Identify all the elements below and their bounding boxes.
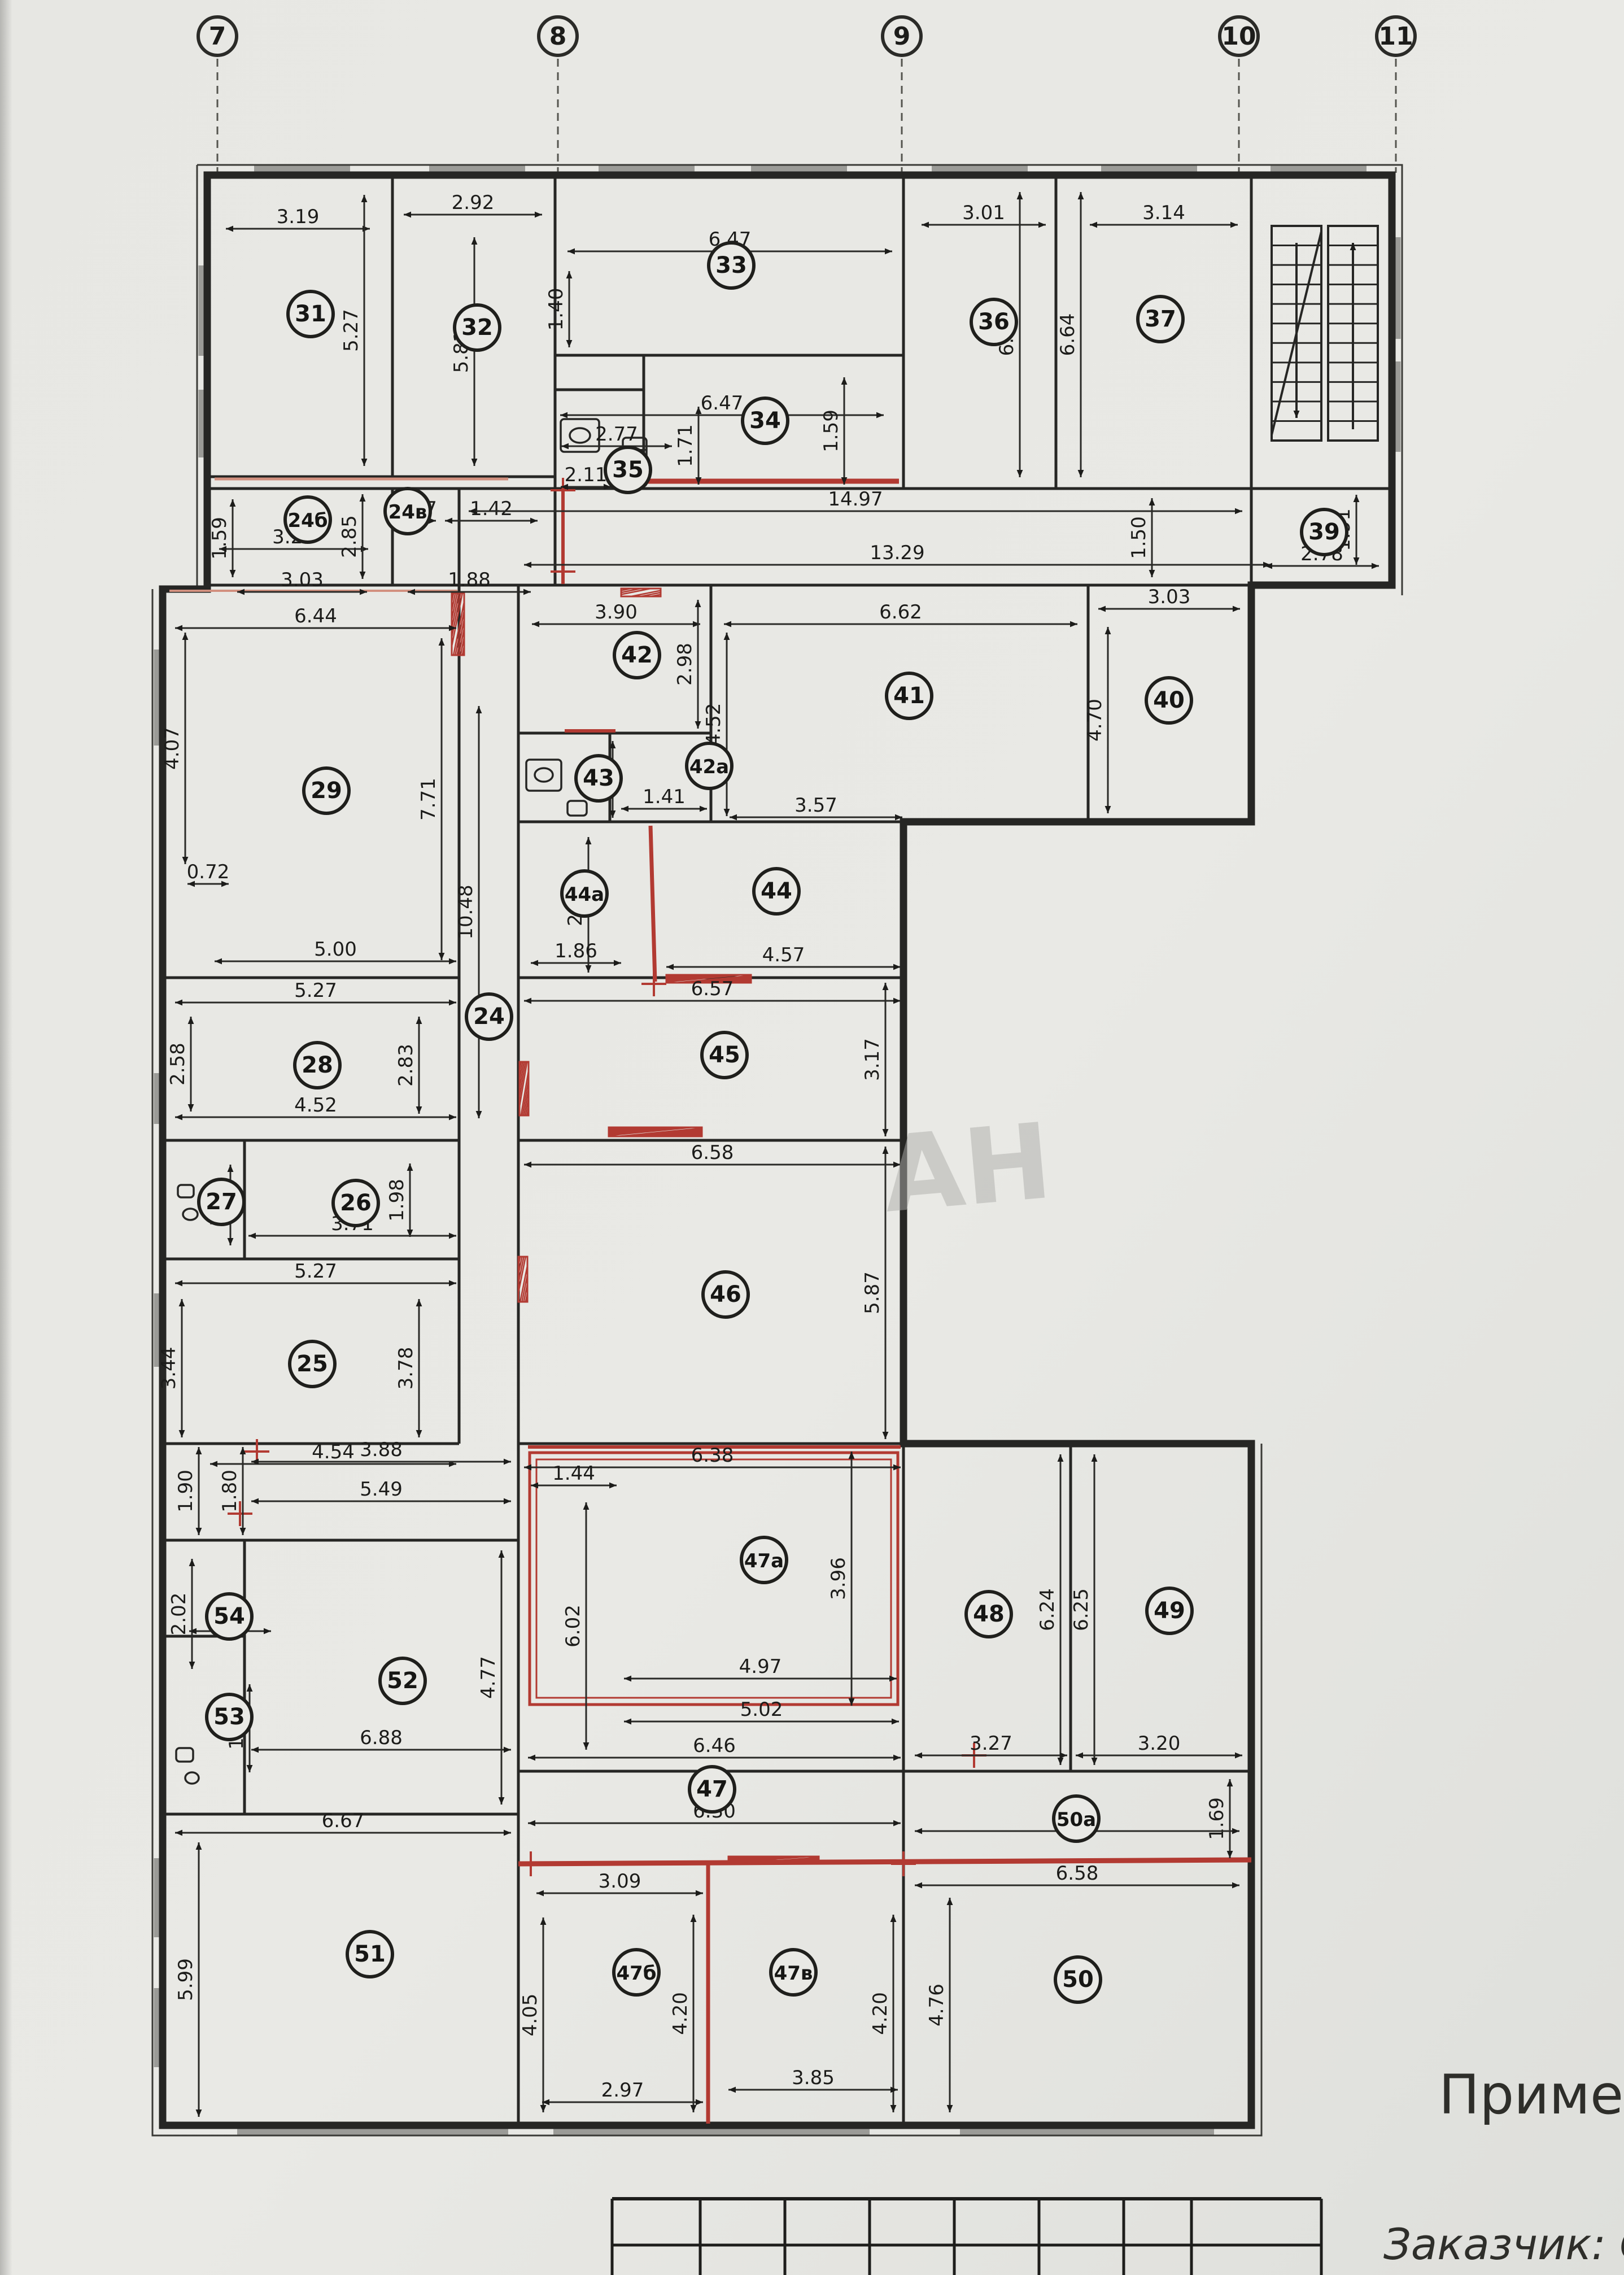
dim-text: 5.27 <box>340 309 363 352</box>
dim-text: 3.09 <box>599 1870 641 1893</box>
dim-text: 6.25 <box>1070 1588 1093 1631</box>
dim-text: 4.70 <box>1084 699 1106 742</box>
dim-text: 3.19 <box>277 206 320 228</box>
room-number-44а: 44а <box>565 883 604 906</box>
dim-text: 5.02 <box>740 1698 783 1721</box>
room-number-28: 28 <box>302 1052 333 1078</box>
dim-text: 2.77 <box>595 423 638 446</box>
dim-text: 1.59 <box>208 517 231 560</box>
room-number-52: 52 <box>387 1668 418 1694</box>
dim-text: 5.87 <box>861 1271 884 1314</box>
room-number-36: 36 <box>978 309 1010 335</box>
dim-text: 7.71 <box>417 778 440 821</box>
dim-text: 3.85 <box>792 2067 835 2089</box>
room-number-47б: 47б <box>616 1962 656 1985</box>
dim-text: 1.41 <box>643 786 686 808</box>
floorplan-page: 78910113.195.272.925.816.471.406.472.772… <box>0 0 1624 2275</box>
room-number-50а: 50а <box>1057 1808 1096 1831</box>
dim-text: 6.46 <box>693 1734 736 1757</box>
dim-text: 3.14 <box>1142 202 1185 224</box>
room-number-32: 32 <box>461 315 493 341</box>
room-number-29: 29 <box>311 778 342 804</box>
red-hatch-stroke <box>809 1863 819 1864</box>
dim-text: 6.57 <box>691 978 734 1000</box>
dim-text: 3.57 <box>794 794 837 817</box>
dim-text: 10.48 <box>455 884 477 939</box>
axis-label: 7 <box>209 22 226 51</box>
axis-label: 11 <box>1378 22 1413 51</box>
dim-text: 4.77 <box>477 1656 500 1699</box>
room-number-24б: 24б <box>287 509 328 532</box>
dim-text: 2.85 <box>338 515 361 558</box>
dim-text: 3.03 <box>281 569 324 591</box>
room-number-45: 45 <box>709 1042 740 1068</box>
dim-text: 2.02 <box>168 1593 190 1636</box>
dim-text: 6.62 <box>879 601 922 624</box>
dim-text: 6.58 <box>691 1141 734 1164</box>
room-number-27: 27 <box>206 1189 237 1215</box>
room-number-24в: 24в <box>388 501 427 524</box>
room-number-47в: 47в <box>774 1962 813 1985</box>
room-number-40: 40 <box>1153 687 1185 713</box>
dim-text: 3.44 <box>158 1347 180 1390</box>
room-number-53: 53 <box>213 1704 245 1730</box>
dim-text: 1.59 <box>820 409 842 452</box>
dim-text: 3.20 <box>1138 1732 1181 1755</box>
client-label: Заказчик: Са <box>1383 2219 1624 2269</box>
room-number-41: 41 <box>893 683 925 709</box>
red-hatch-stroke <box>693 1135 702 1136</box>
dim-text: 6.47 <box>701 392 744 415</box>
room-number-51: 51 <box>354 1941 386 1967</box>
dim-text: 2.97 <box>601 2079 644 2102</box>
axis-label: 10 <box>1221 22 1256 51</box>
dim-text: 4.05 <box>519 1994 542 2037</box>
notes-heading: Примечани <box>1439 2063 1624 2126</box>
room-number-42: 42 <box>621 642 653 668</box>
dim-text: 14.97 <box>828 488 883 511</box>
dim-text: 3.96 <box>827 1557 850 1600</box>
room-number-50: 50 <box>1062 1967 1094 1993</box>
dim-text: 4.76 <box>925 1984 948 2026</box>
dim-text: 6.58 <box>1056 1862 1099 1885</box>
dim-text: 6.67 <box>322 1810 365 1832</box>
dim-text: 2.98 <box>674 643 696 686</box>
room-number-42а: 42а <box>689 756 729 778</box>
dim-text: 2.58 <box>167 1043 189 1086</box>
room-number-44: 44 <box>761 878 792 904</box>
room-number-46: 46 <box>710 1282 741 1308</box>
dim-text: 5.99 <box>174 1958 197 2001</box>
room-number-31: 31 <box>295 301 326 327</box>
dim-text: 3.78 <box>395 1347 417 1390</box>
room-number-26: 26 <box>340 1190 372 1216</box>
dim-text: 1.86 <box>555 940 597 962</box>
dim-text: 6.38 <box>691 1444 734 1467</box>
dim-text: 1.98 <box>386 1179 408 1222</box>
dim-text: 2.11 <box>565 464 608 486</box>
dim-text: 1.50 <box>1128 516 1150 559</box>
dim-text: 4.97 <box>739 1655 782 1678</box>
dim-text: 4.57 <box>762 944 805 966</box>
dim-text: 3.88 <box>360 1439 403 1461</box>
axis-label: 8 <box>549 22 567 51</box>
dim-text: 5.49 <box>360 1478 403 1501</box>
room-number-33: 33 <box>715 252 747 278</box>
room-number-49: 49 <box>1154 1598 1185 1624</box>
dim-text: 6.44 <box>294 605 337 627</box>
dim-text: 1.88 <box>448 569 491 591</box>
dim-text: 4.54 <box>312 1441 355 1463</box>
dim-text: 1.42 <box>470 498 513 520</box>
dim-text: 2.83 <box>395 1044 417 1087</box>
dim-text: 6.64 <box>1057 313 1079 356</box>
room-number-37: 37 <box>1145 306 1176 332</box>
room-number-34: 34 <box>749 408 781 434</box>
paper-background <box>0 0 1624 2275</box>
dim-text: 1.71 <box>674 424 697 467</box>
paper-edge-shadow <box>0 0 12 2275</box>
dim-text: 6.88 <box>360 1727 403 1749</box>
dim-text: 3.03 <box>1148 586 1191 608</box>
room-number-35: 35 <box>612 457 644 483</box>
room-number-47а: 47а <box>744 1550 784 1572</box>
dim-text: 6.24 <box>1036 1588 1059 1631</box>
room-number-24: 24 <box>473 1004 505 1030</box>
dim-text: 3.27 <box>970 1732 1012 1755</box>
dim-text: 4.20 <box>869 1992 892 2035</box>
room-number-48: 48 <box>973 1601 1005 1627</box>
dim-text: 1.90 <box>174 1470 197 1513</box>
dim-text: 3.01 <box>962 202 1005 224</box>
dim-text: 3.17 <box>861 1038 884 1081</box>
dim-text: 1.44 <box>552 1462 595 1485</box>
room-number-25: 25 <box>296 1351 328 1377</box>
dim-text: 13.29 <box>870 542 924 564</box>
room-number-54: 54 <box>213 1603 245 1629</box>
dim-text: 4.52 <box>702 703 725 746</box>
dim-text: 4.07 <box>161 727 184 770</box>
watermark-text: АН <box>878 1100 1057 1236</box>
dim-text: 2.92 <box>452 191 495 214</box>
room-number-39: 39 <box>1308 519 1340 545</box>
dim-text: 0.72 <box>187 861 230 883</box>
axis-label: 9 <box>893 22 911 51</box>
room-number-47: 47 <box>696 1776 728 1802</box>
room-number-43: 43 <box>583 765 614 791</box>
red-hatch-stroke <box>741 982 751 983</box>
dim-text: 5.27 <box>294 979 337 1002</box>
dim-text: 4.52 <box>294 1094 337 1117</box>
dim-text: 3.90 <box>595 601 638 624</box>
dim-text: 4.20 <box>669 1992 692 2035</box>
floor-plan-svg: 78910113.195.272.925.816.471.406.472.772… <box>0 0 1624 2275</box>
dim-text: 5.27 <box>294 1260 337 1283</box>
dim-text: 6.02 <box>562 1605 584 1648</box>
dim-text: 1.80 <box>219 1470 241 1513</box>
dim-text: 1.40 <box>545 288 567 331</box>
dim-text: 1.69 <box>1206 1797 1228 1840</box>
dim-text: 5.00 <box>314 938 357 961</box>
